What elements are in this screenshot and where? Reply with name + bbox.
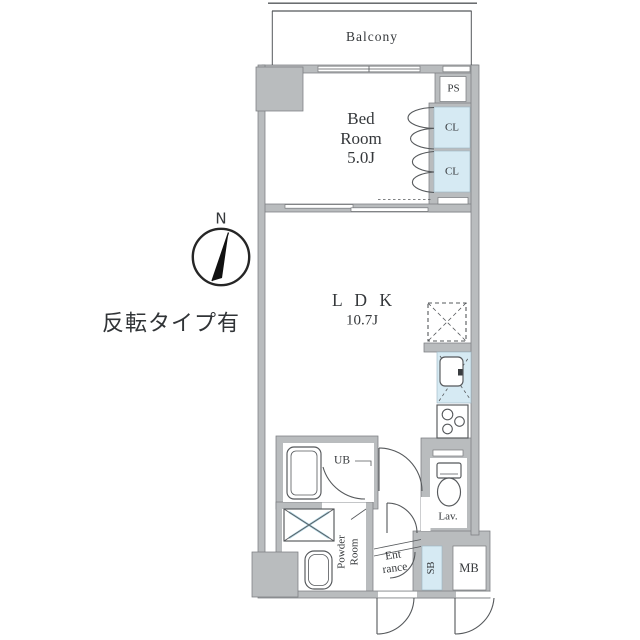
wall-segment [424,343,472,352]
compass [193,229,249,285]
meter-box-label: MB [459,560,478,574]
entrance-label: Ent rance [380,548,408,576]
bedroom-size-label: 5.0J [340,148,382,168]
ldk-size-label: 10.7J [346,312,378,329]
floor-plan: Balcony Bed Room 5.0J L D K 10.7J PS CL … [0,0,640,640]
ldk-label: L D K [332,290,396,310]
lavatory-label: Lav. [438,510,457,523]
closet-upper-label: CL [445,121,459,134]
front-door-swing [377,598,414,634]
powder-sink [305,551,332,589]
meter-box-door-opening [456,592,493,598]
hall-ldk-door-swing [379,448,422,491]
closet-lower-label: CL [445,165,459,178]
wall-pillar-bottom-left [252,552,298,597]
kitchen-faucet [458,369,463,376]
wall-pillar-top-left [256,67,303,111]
bedroom-label-line1: Bed [340,109,382,129]
stove [437,405,468,438]
wall-right [471,65,479,535]
wall-left [258,65,265,597]
meter-box-door-swing [455,598,494,634]
bath-label: UB [334,454,350,467]
sliding-door-pane [285,205,353,209]
compass-north-label: N [215,210,226,227]
toilet-tank [437,463,461,478]
hall-entrance-door-swing [387,503,417,533]
refrigerator-space-cross [428,303,466,341]
bathtub [287,447,321,499]
wall-opening [438,198,468,205]
entrance-door-opening [378,592,417,598]
lavatory-door-opening [421,497,431,531]
pipe-space-label: PS [447,83,459,96]
ps-opening [443,66,470,72]
sliding-door-pane [351,208,428,212]
balcony-label: Balcony [346,29,398,45]
reverse-type-note: 反転タイプ有 [102,311,240,336]
bedroom-label-line2: Room [340,128,382,148]
bedroom-label: Bed Room 5.0J [340,109,382,168]
toilet-bowl [438,478,461,506]
floor-plan-drawing [0,0,640,640]
shoe-box-label: SB [425,561,437,574]
lavatory-window [433,450,463,456]
powder-room-label: Powder Room [336,525,361,579]
